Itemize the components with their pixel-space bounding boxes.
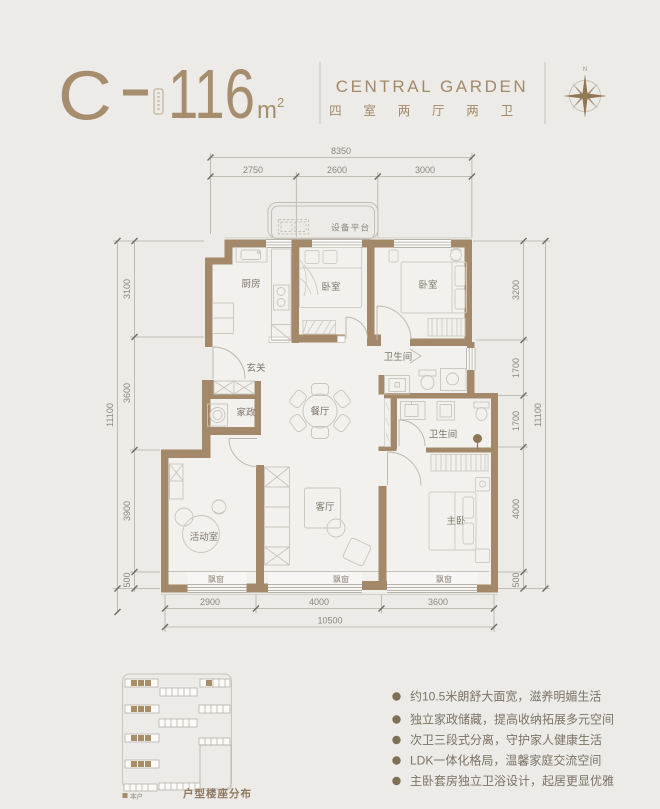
svg-text:设备平台: 设备平台 <box>331 222 370 233</box>
svg-text:飘窗: 飘窗 <box>208 574 224 584</box>
svg-text:2900: 2900 <box>200 597 220 607</box>
svg-text:活动室: 活动室 <box>190 531 219 543</box>
svg-text:3600: 3600 <box>122 383 132 403</box>
svg-text:家政: 家政 <box>236 407 256 419</box>
svg-text:户型楼座分布: 户型楼座分布 <box>182 787 252 800</box>
svg-text:主卧套房独立卫浴设计，起居更显优雅: 主卧套房独立卫浴设计，起居更显优雅 <box>410 773 614 788</box>
svg-text:客厅: 客厅 <box>315 501 335 513</box>
svg-text:3900: 3900 <box>122 501 132 521</box>
svg-text:11100: 11100 <box>105 403 115 427</box>
svg-text:3100: 3100 <box>122 279 132 299</box>
svg-text:飘窗: 飘窗 <box>436 574 452 584</box>
svg-text:LDK一体化格局，温馨家庭交流空间: LDK一体化格局，温馨家庭交流空间 <box>410 753 601 768</box>
svg-text:主卧: 主卧 <box>446 515 466 527</box>
svg-text:飘窗: 飘窗 <box>333 574 349 584</box>
svg-text:8350: 8350 <box>331 146 351 156</box>
svg-text:1700: 1700 <box>511 358 521 378</box>
svg-text:11100: 11100 <box>533 403 543 427</box>
svg-text:m: m <box>257 97 277 124</box>
svg-text:玄关: 玄关 <box>246 362 266 374</box>
svg-text:卫生间: 卫生间 <box>384 351 413 363</box>
svg-text:10500: 10500 <box>317 616 342 626</box>
svg-text:2750: 2750 <box>243 165 263 175</box>
svg-text:独立家政储藏，提高收纳拓展多元空间: 独立家政储藏，提高收纳拓展多元空间 <box>410 712 614 727</box>
svg-text:卫生间: 卫生间 <box>429 429 458 441</box>
svg-text:卧室: 卧室 <box>418 279 437 291</box>
svg-text:N: N <box>583 67 587 73</box>
svg-text:卧室: 卧室 <box>321 281 340 293</box>
svg-text:CENTRAL GARDEN: CENTRAL GARDEN <box>336 77 529 96</box>
svg-text:餐厅: 餐厅 <box>310 406 330 418</box>
svg-text:500: 500 <box>122 572 132 587</box>
svg-text:约10.5米朗舒大面宽，滋养明媚生活: 约10.5米朗舒大面宽，滋养明媚生活 <box>410 689 601 704</box>
svg-text:4000: 4000 <box>511 499 521 519</box>
svg-text:2: 2 <box>277 95 284 110</box>
svg-text:3600: 3600 <box>428 597 448 607</box>
svg-text:3000: 3000 <box>415 165 435 175</box>
svg-text:3200: 3200 <box>511 280 521 300</box>
svg-text:次卫三段式分离，守护家人健康生活: 次卫三段式分离，守护家人健康生活 <box>410 732 602 747</box>
svg-text:500: 500 <box>511 572 521 587</box>
svg-text:1700: 1700 <box>511 411 521 431</box>
svg-text:2600: 2600 <box>327 165 347 175</box>
svg-text:116: 116 <box>168 55 255 133</box>
svg-text:四室两厅两卫: 四室两厅两卫 <box>329 103 535 118</box>
svg-text:4000: 4000 <box>309 597 329 607</box>
svg-text:本户: 本户 <box>130 792 143 801</box>
svg-text:C: C <box>58 57 112 135</box>
svg-text:厨房: 厨房 <box>241 278 260 290</box>
